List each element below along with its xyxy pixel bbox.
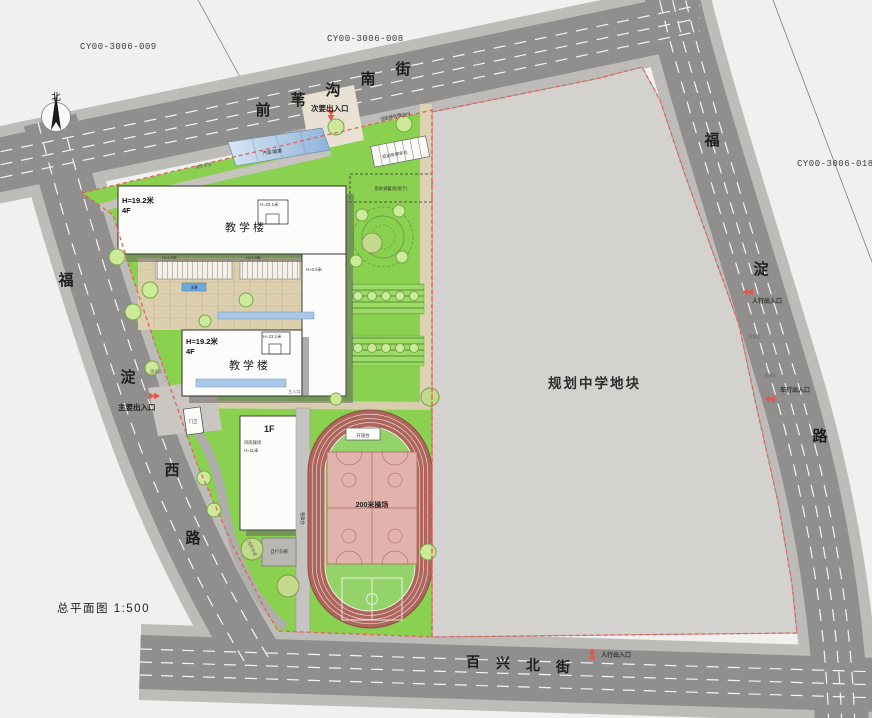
teaching1-roof-height: H=23.1米 [260,201,279,208]
secondary-entrance-label: 次要出入口 [311,103,349,113]
street-char: 路 [185,529,201,547]
street-char: 兴 [496,655,510,671]
water-feature-label: 水景 [190,285,198,290]
street-char: 前 [255,101,270,119]
street-char: 路 [812,427,828,445]
ped-right-label: 人行出入口 [752,297,782,305]
h05-label: H=0.5米 [306,266,323,273]
rain-tank-label: 雨水调蓄池(地下) [375,185,409,192]
drawing-title: 总平面图 1:500 [57,601,150,615]
teaching1-height: H=19.2米 [122,195,154,205]
street-char: 淀 [753,260,769,278]
track-label: 200米操场 [356,500,389,509]
street-char: 街 [555,659,570,675]
main-entrance-label: 主要出入口 [118,402,156,412]
street-char: 街 [394,60,410,78]
teaching2-roof-height: H=23.1米 [263,333,282,340]
veh-right-label: 车行出入口 [780,386,810,394]
site-plan: 北 CY00-3006-009 CY00-3006-008 CY00-3006-… [0,0,872,718]
pergola-west [156,261,232,279]
street-char: 苇 [290,91,305,109]
street-char: 百 [466,654,480,670]
drop-off-label-right-2: 落客区 [764,372,777,379]
street-char: 南 [360,70,375,88]
parcel-code-top-mid: CY00-3006-008 [327,34,404,44]
street-char: 福 [57,271,73,289]
ped-bottom-label: 人行出入口 [601,651,631,659]
h15-label-east: H=1.5米 [246,254,261,260]
street-char: 北 [526,657,540,673]
teaching1-floors: 4F [122,206,131,215]
teaching1-label: 教学楼 [225,220,267,234]
teaching2-floors: 4F [186,347,195,356]
flag-stage-label: 升旗台 [357,432,370,439]
street-char: 西 [164,462,179,479]
parcel-code-top-left: CY00-3006-009 [80,42,157,52]
canopy-north [218,312,314,319]
canopy-south [196,379,286,387]
stand-label: 看操台 [299,512,306,525]
street-char: 福 [703,131,719,149]
pergola-east [240,261,300,279]
drop-off-label-left: 落客区 [150,368,163,375]
h15-label-west: H=1.5米 [162,254,177,260]
street-char: 沟 [325,81,340,99]
gym-floors: 1F [264,424,275,434]
gym-height: H=11米 [244,447,259,454]
reserved-plot-label: 规划中学地块 [548,375,641,391]
drop-off-label-right-1: 落客区 [748,333,761,340]
north-label: 北 [51,92,61,103]
bike-shed-label: 自行车棚 [270,548,287,555]
running-track [308,410,432,628]
street-char: 淀 [120,368,136,386]
parcel-code-right: CY00-3006-018 [797,159,872,169]
teaching2-label: 教学楼 [229,358,271,372]
gatehouse-label: 门卫 [189,418,198,425]
teaching2-height: H=19.2米 [186,336,218,346]
gym-name: 风雨操场 [244,439,262,446]
main-gate-label: 主入口 [288,388,301,394]
